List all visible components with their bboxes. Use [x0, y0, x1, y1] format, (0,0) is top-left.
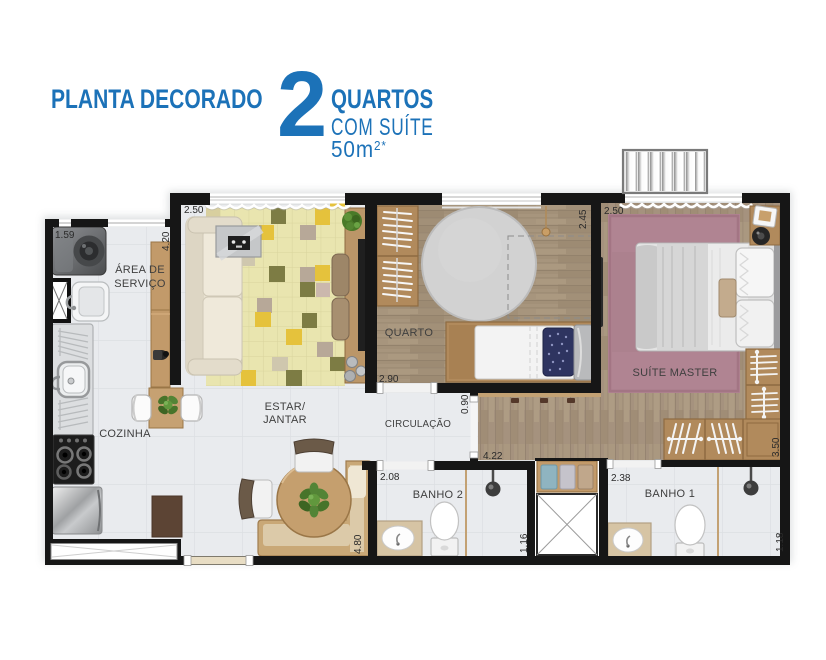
svg-text:CIRCULAÇÃO: CIRCULAÇÃO [385, 419, 451, 430]
svg-text:PLANTA DECORADO: PLANTA DECORADO [51, 85, 263, 115]
svg-text:BANHO 1: BANHO 1 [645, 488, 695, 500]
svg-text:ESTAR/: ESTAR/ [265, 401, 306, 413]
svg-text:SUÍTE MASTER: SUÍTE MASTER [633, 366, 718, 379]
svg-text:JANTAR: JANTAR [263, 414, 307, 426]
svg-text:0.90: 0.90 [460, 394, 471, 414]
svg-text:1.18: 1.18 [775, 532, 786, 552]
svg-text:2.90: 2.90 [379, 374, 399, 385]
svg-text:1.59: 1.59 [55, 230, 75, 241]
svg-text:3.50: 3.50 [771, 437, 782, 457]
svg-text:QUARTOS: QUARTOS [331, 84, 433, 114]
svg-text:QUARTO: QUARTO [385, 327, 434, 339]
svg-text:2.45: 2.45 [578, 209, 589, 229]
svg-text:ÁREA DE: ÁREA DE [115, 263, 165, 276]
svg-text:1.16: 1.16 [519, 533, 530, 553]
svg-text:4.20: 4.20 [161, 231, 172, 251]
svg-text:BANHO 2: BANHO 2 [413, 489, 463, 501]
svg-text:2.08: 2.08 [380, 472, 400, 483]
svg-text:4.22: 4.22 [483, 451, 503, 462]
svg-text:4.80: 4.80 [353, 534, 364, 554]
svg-text:2.50: 2.50 [184, 205, 204, 216]
svg-text:2.38: 2.38 [611, 473, 631, 484]
svg-text:2: 2 [277, 53, 327, 157]
svg-text:2.50: 2.50 [604, 206, 624, 217]
svg-text:COZINHA: COZINHA [99, 428, 151, 440]
svg-text:SERVIÇO: SERVIÇO [114, 278, 166, 290]
